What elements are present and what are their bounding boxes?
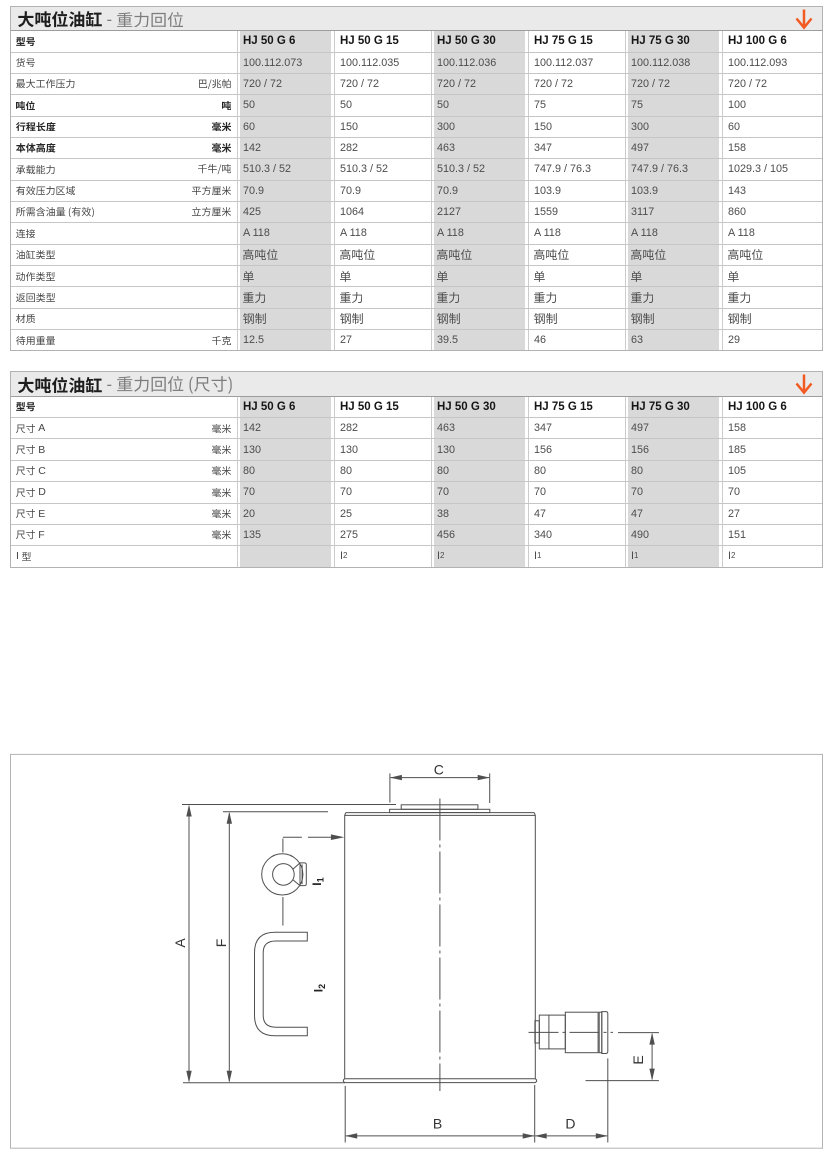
svg-text:F: F [213,939,229,948]
svg-text:E: E [630,1055,646,1064]
svg-text:I2: I2 [311,984,327,992]
svg-text:C: C [434,762,444,778]
svg-text:I1: I1 [310,877,326,885]
svg-text:A: A [172,938,188,948]
svg-text:D: D [565,1116,575,1132]
svg-text:B: B [433,1116,442,1132]
